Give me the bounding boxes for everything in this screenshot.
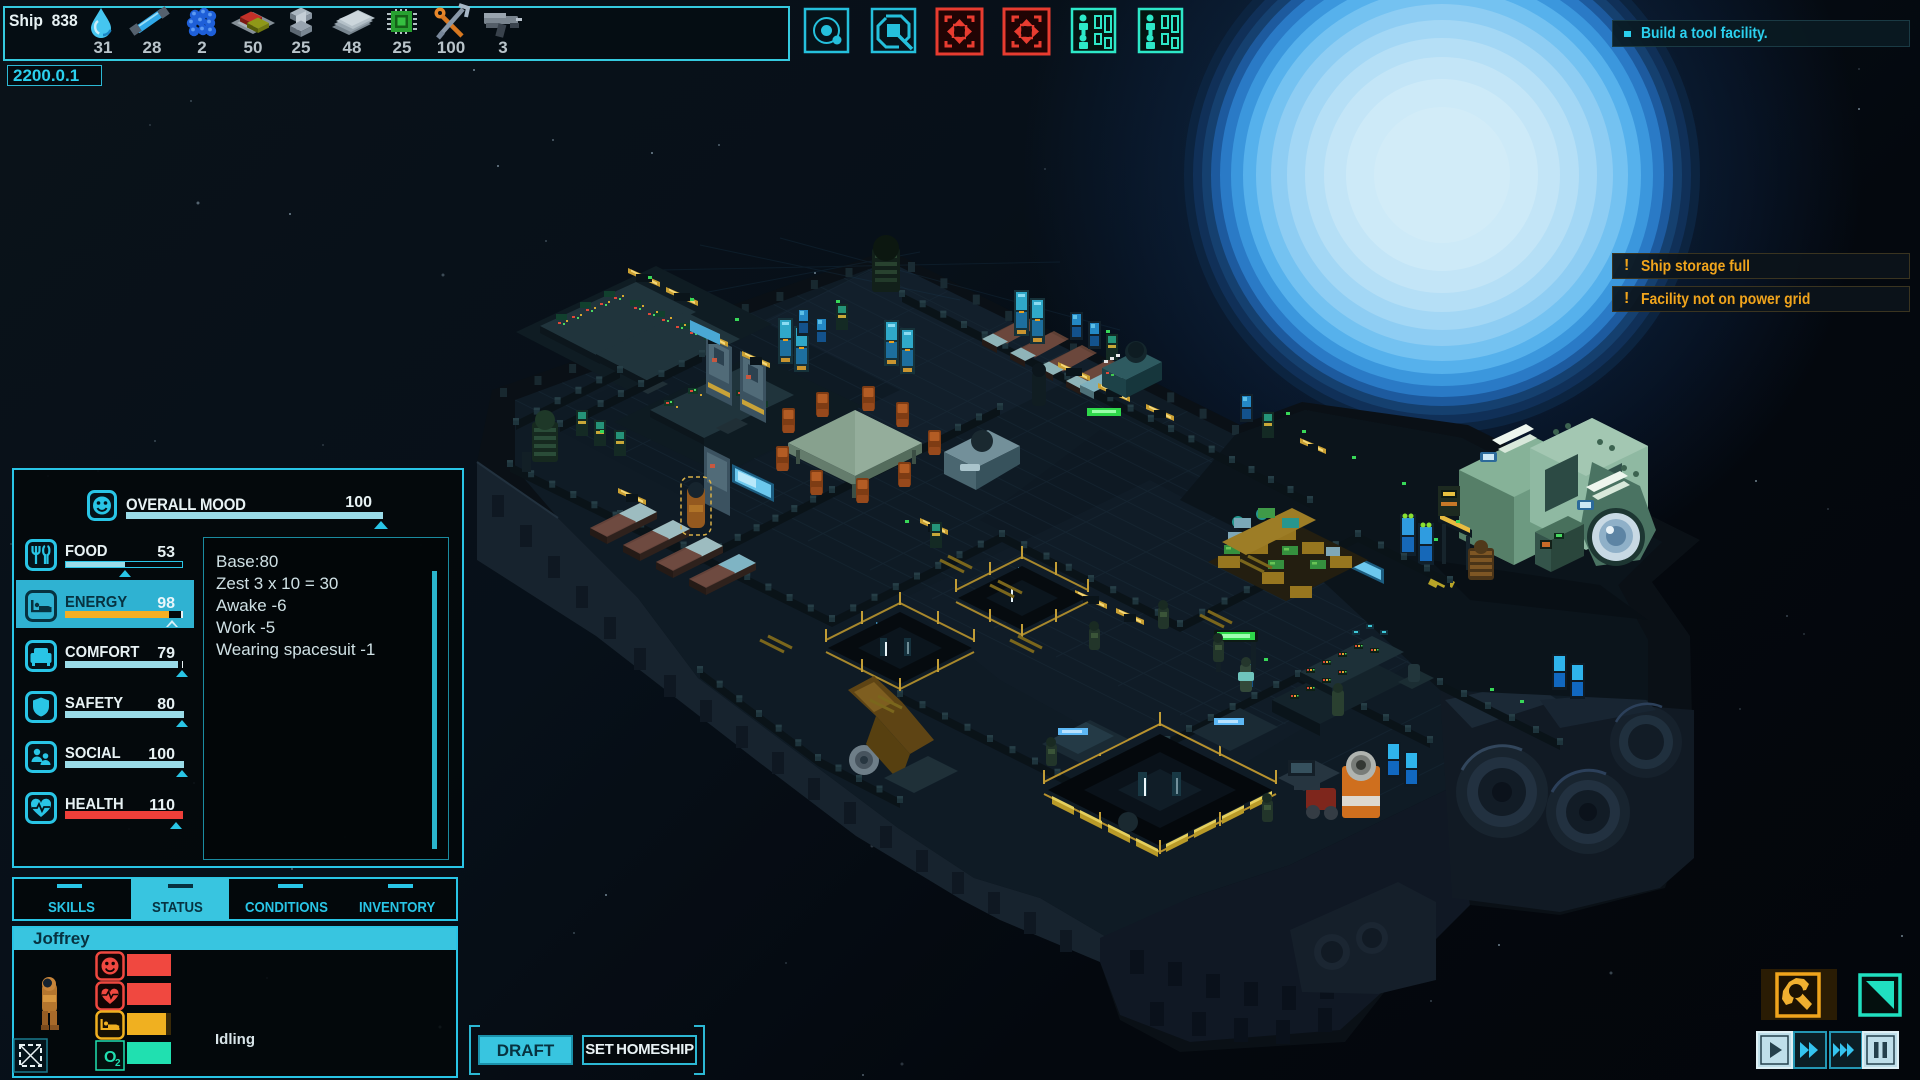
svg-text:100: 100 <box>437 38 465 57</box>
svg-text:31: 31 <box>94 38 113 57</box>
svg-text:3: 3 <box>498 38 507 57</box>
svg-text:25: 25 <box>292 38 311 57</box>
svg-text:2: 2 <box>197 38 206 57</box>
svg-text:2: 2 <box>115 1058 121 1069</box>
svg-text:25: 25 <box>393 38 412 57</box>
svg-text:28: 28 <box>143 38 162 57</box>
svg-text:48: 48 <box>343 38 362 57</box>
svg-text:50: 50 <box>244 38 263 57</box>
